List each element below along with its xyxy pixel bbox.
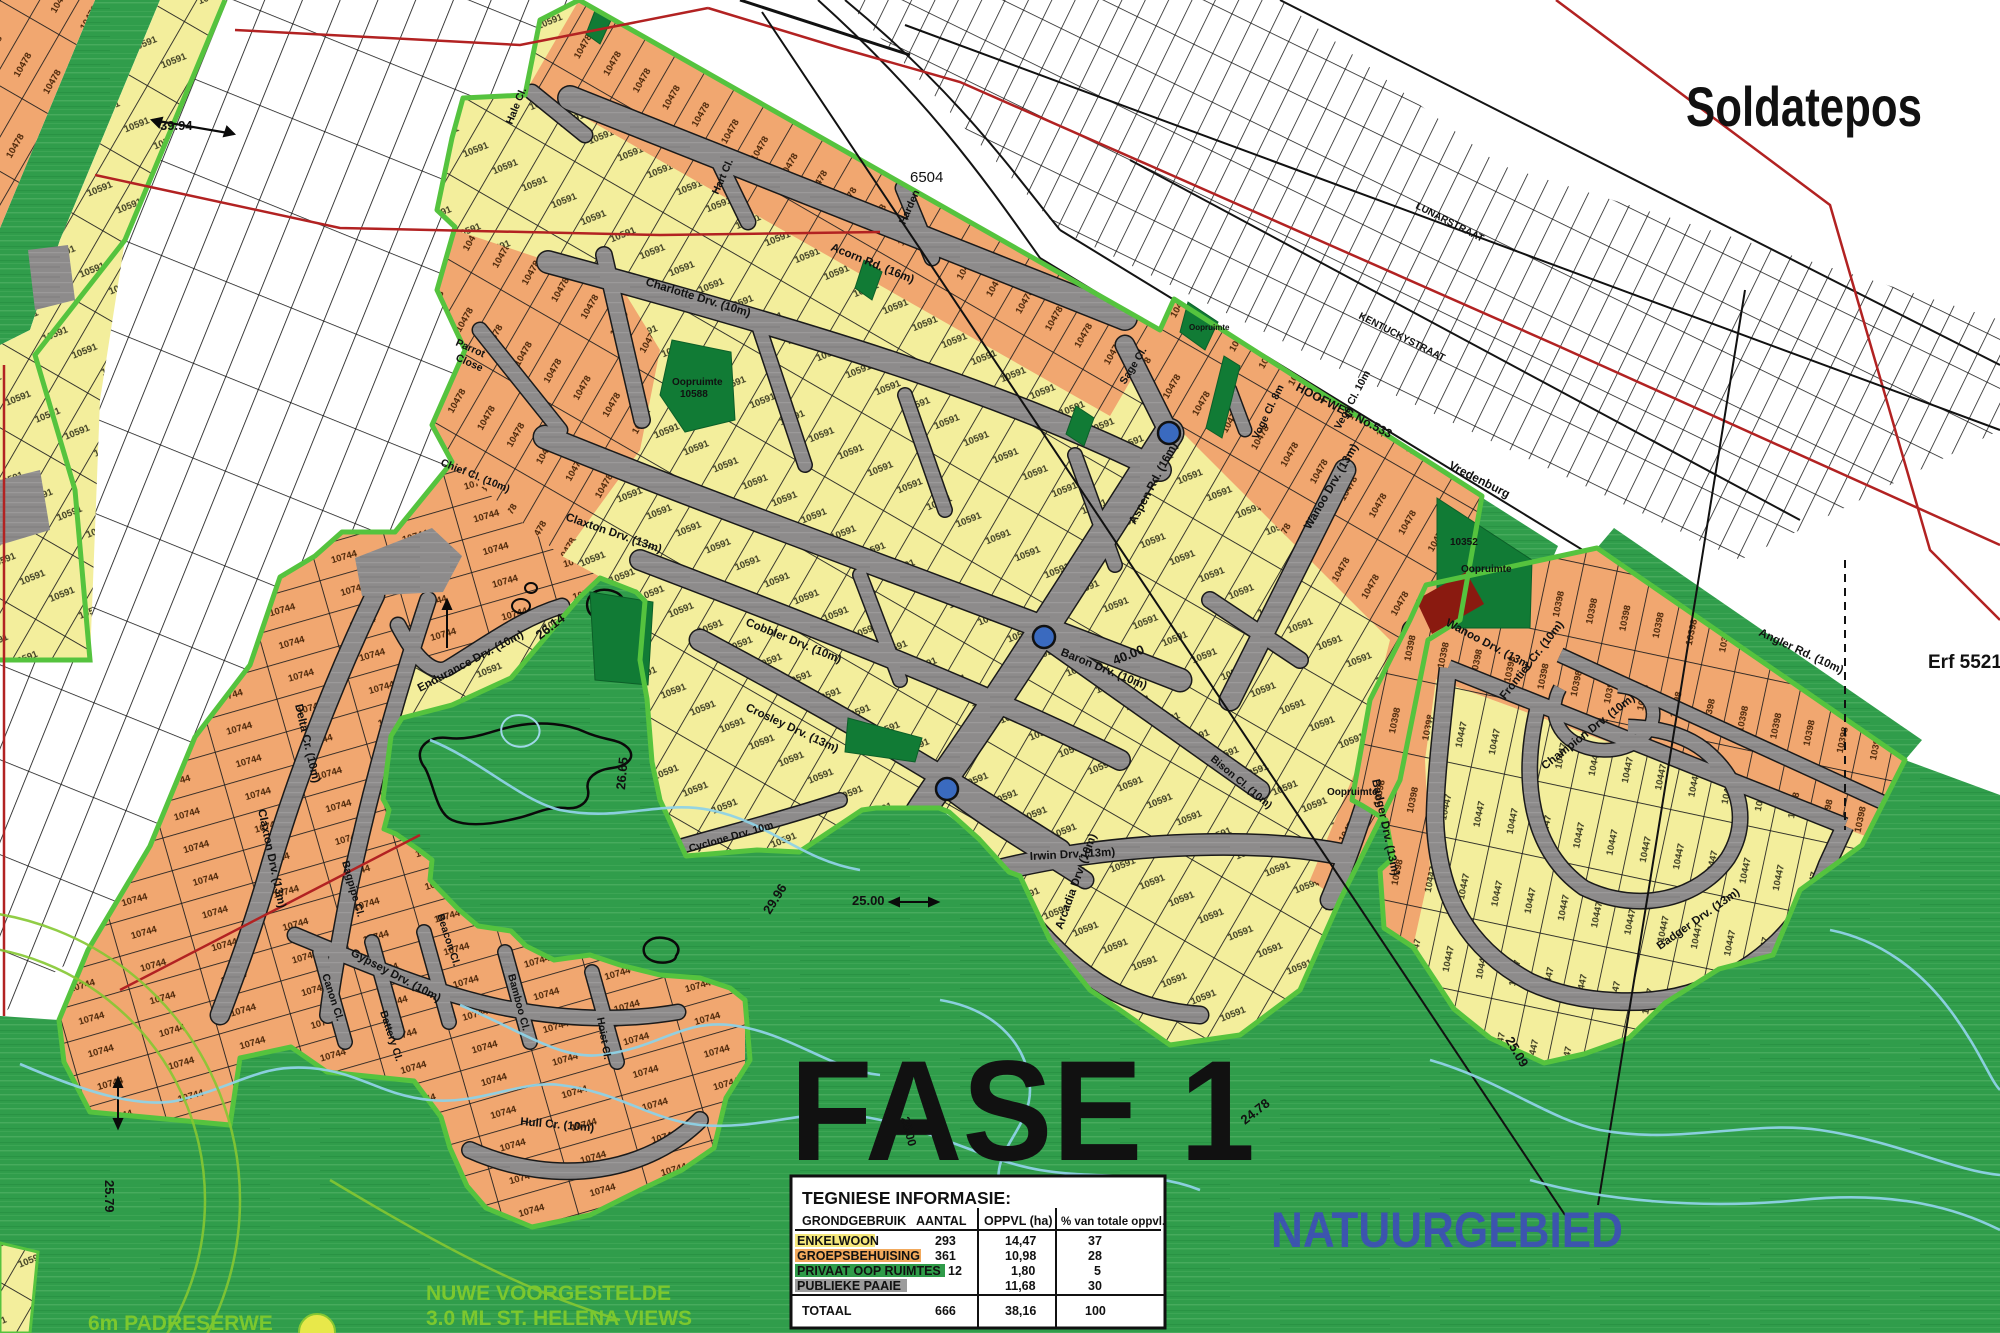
svg-text:361: 361 bbox=[935, 1249, 956, 1263]
svg-text:TEGNIESE INFORMASIE:: TEGNIESE INFORMASIE: bbox=[802, 1188, 1011, 1208]
svg-text:10,98: 10,98 bbox=[1005, 1249, 1036, 1263]
svg-text:ENKELWOON: ENKELWOON bbox=[797, 1234, 879, 1248]
svg-text:PUBLIEKE PAAIE: PUBLIEKE PAAIE bbox=[797, 1279, 901, 1293]
svg-text:NUWE VOORGESTELDE: NUWE VOORGESTELDE bbox=[426, 1282, 671, 1305]
svg-text:Oopruimte: Oopruimte bbox=[1189, 323, 1230, 332]
svg-text:14,47: 14,47 bbox=[1005, 1234, 1036, 1248]
svg-text:12: 12 bbox=[948, 1264, 962, 1278]
svg-text:38,16: 38,16 bbox=[1005, 1304, 1036, 1318]
svg-text:30: 30 bbox=[1088, 1279, 1102, 1293]
svg-text:25.00: 25.00 bbox=[852, 893, 885, 908]
svg-text:Oopruimte: Oopruimte bbox=[1327, 787, 1378, 798]
svg-text:Oopruimte: Oopruimte bbox=[1461, 564, 1512, 575]
svg-text:TOTAAL: TOTAAL bbox=[802, 1304, 852, 1318]
svg-text:AANTAL: AANTAL bbox=[916, 1214, 967, 1228]
svg-text:37: 37 bbox=[1088, 1234, 1102, 1248]
svg-text:10588: 10588 bbox=[680, 389, 708, 400]
svg-text:GRONDGEBRUIK: GRONDGEBRUIK bbox=[802, 1214, 906, 1228]
svg-text:100: 100 bbox=[1085, 1304, 1106, 1318]
svg-text:OPPVL (ha): OPPVL (ha) bbox=[984, 1214, 1053, 1228]
svg-text:666: 666 bbox=[935, 1304, 956, 1318]
svg-text:5: 5 bbox=[1094, 1264, 1101, 1278]
svg-text:Erf 5521: Erf 5521 bbox=[1928, 652, 2000, 673]
svg-text:1,80: 1,80 bbox=[1011, 1264, 1035, 1278]
svg-text:10352: 10352 bbox=[1450, 537, 1478, 548]
svg-text:PRIVAAT OOP RUIMTES: PRIVAAT OOP RUIMTES bbox=[797, 1264, 941, 1278]
svg-text:3.0 ML ST. HELENA VIEWS: 3.0 ML ST. HELENA VIEWS bbox=[426, 1307, 692, 1330]
svg-text:6m PADRESERWE: 6m PADRESERWE bbox=[88, 1312, 273, 1333]
svg-text:6504: 6504 bbox=[910, 169, 943, 186]
svg-text:Soldatepos: Soldatepos bbox=[1686, 75, 1922, 138]
svg-text:26.65: 26.65 bbox=[613, 757, 631, 791]
svg-text:28: 28 bbox=[1088, 1249, 1102, 1263]
svg-text:NATUURGEBIED: NATUURGEBIED bbox=[1271, 1202, 1623, 1258]
svg-text:GROEPSBEHUISING: GROEPSBEHUISING bbox=[797, 1249, 920, 1263]
svg-text:Oopruimte: Oopruimte bbox=[672, 377, 723, 388]
svg-text:FASE 1: FASE 1 bbox=[790, 1032, 1255, 1191]
svg-text:% van totale oppvl.: % van totale oppvl. bbox=[1061, 1216, 1165, 1228]
svg-text:25.79: 25.79 bbox=[102, 1180, 117, 1213]
svg-text:39.94: 39.94 bbox=[160, 118, 193, 133]
svg-text:11,68: 11,68 bbox=[1005, 1279, 1036, 1293]
svg-text:293: 293 bbox=[935, 1234, 956, 1248]
